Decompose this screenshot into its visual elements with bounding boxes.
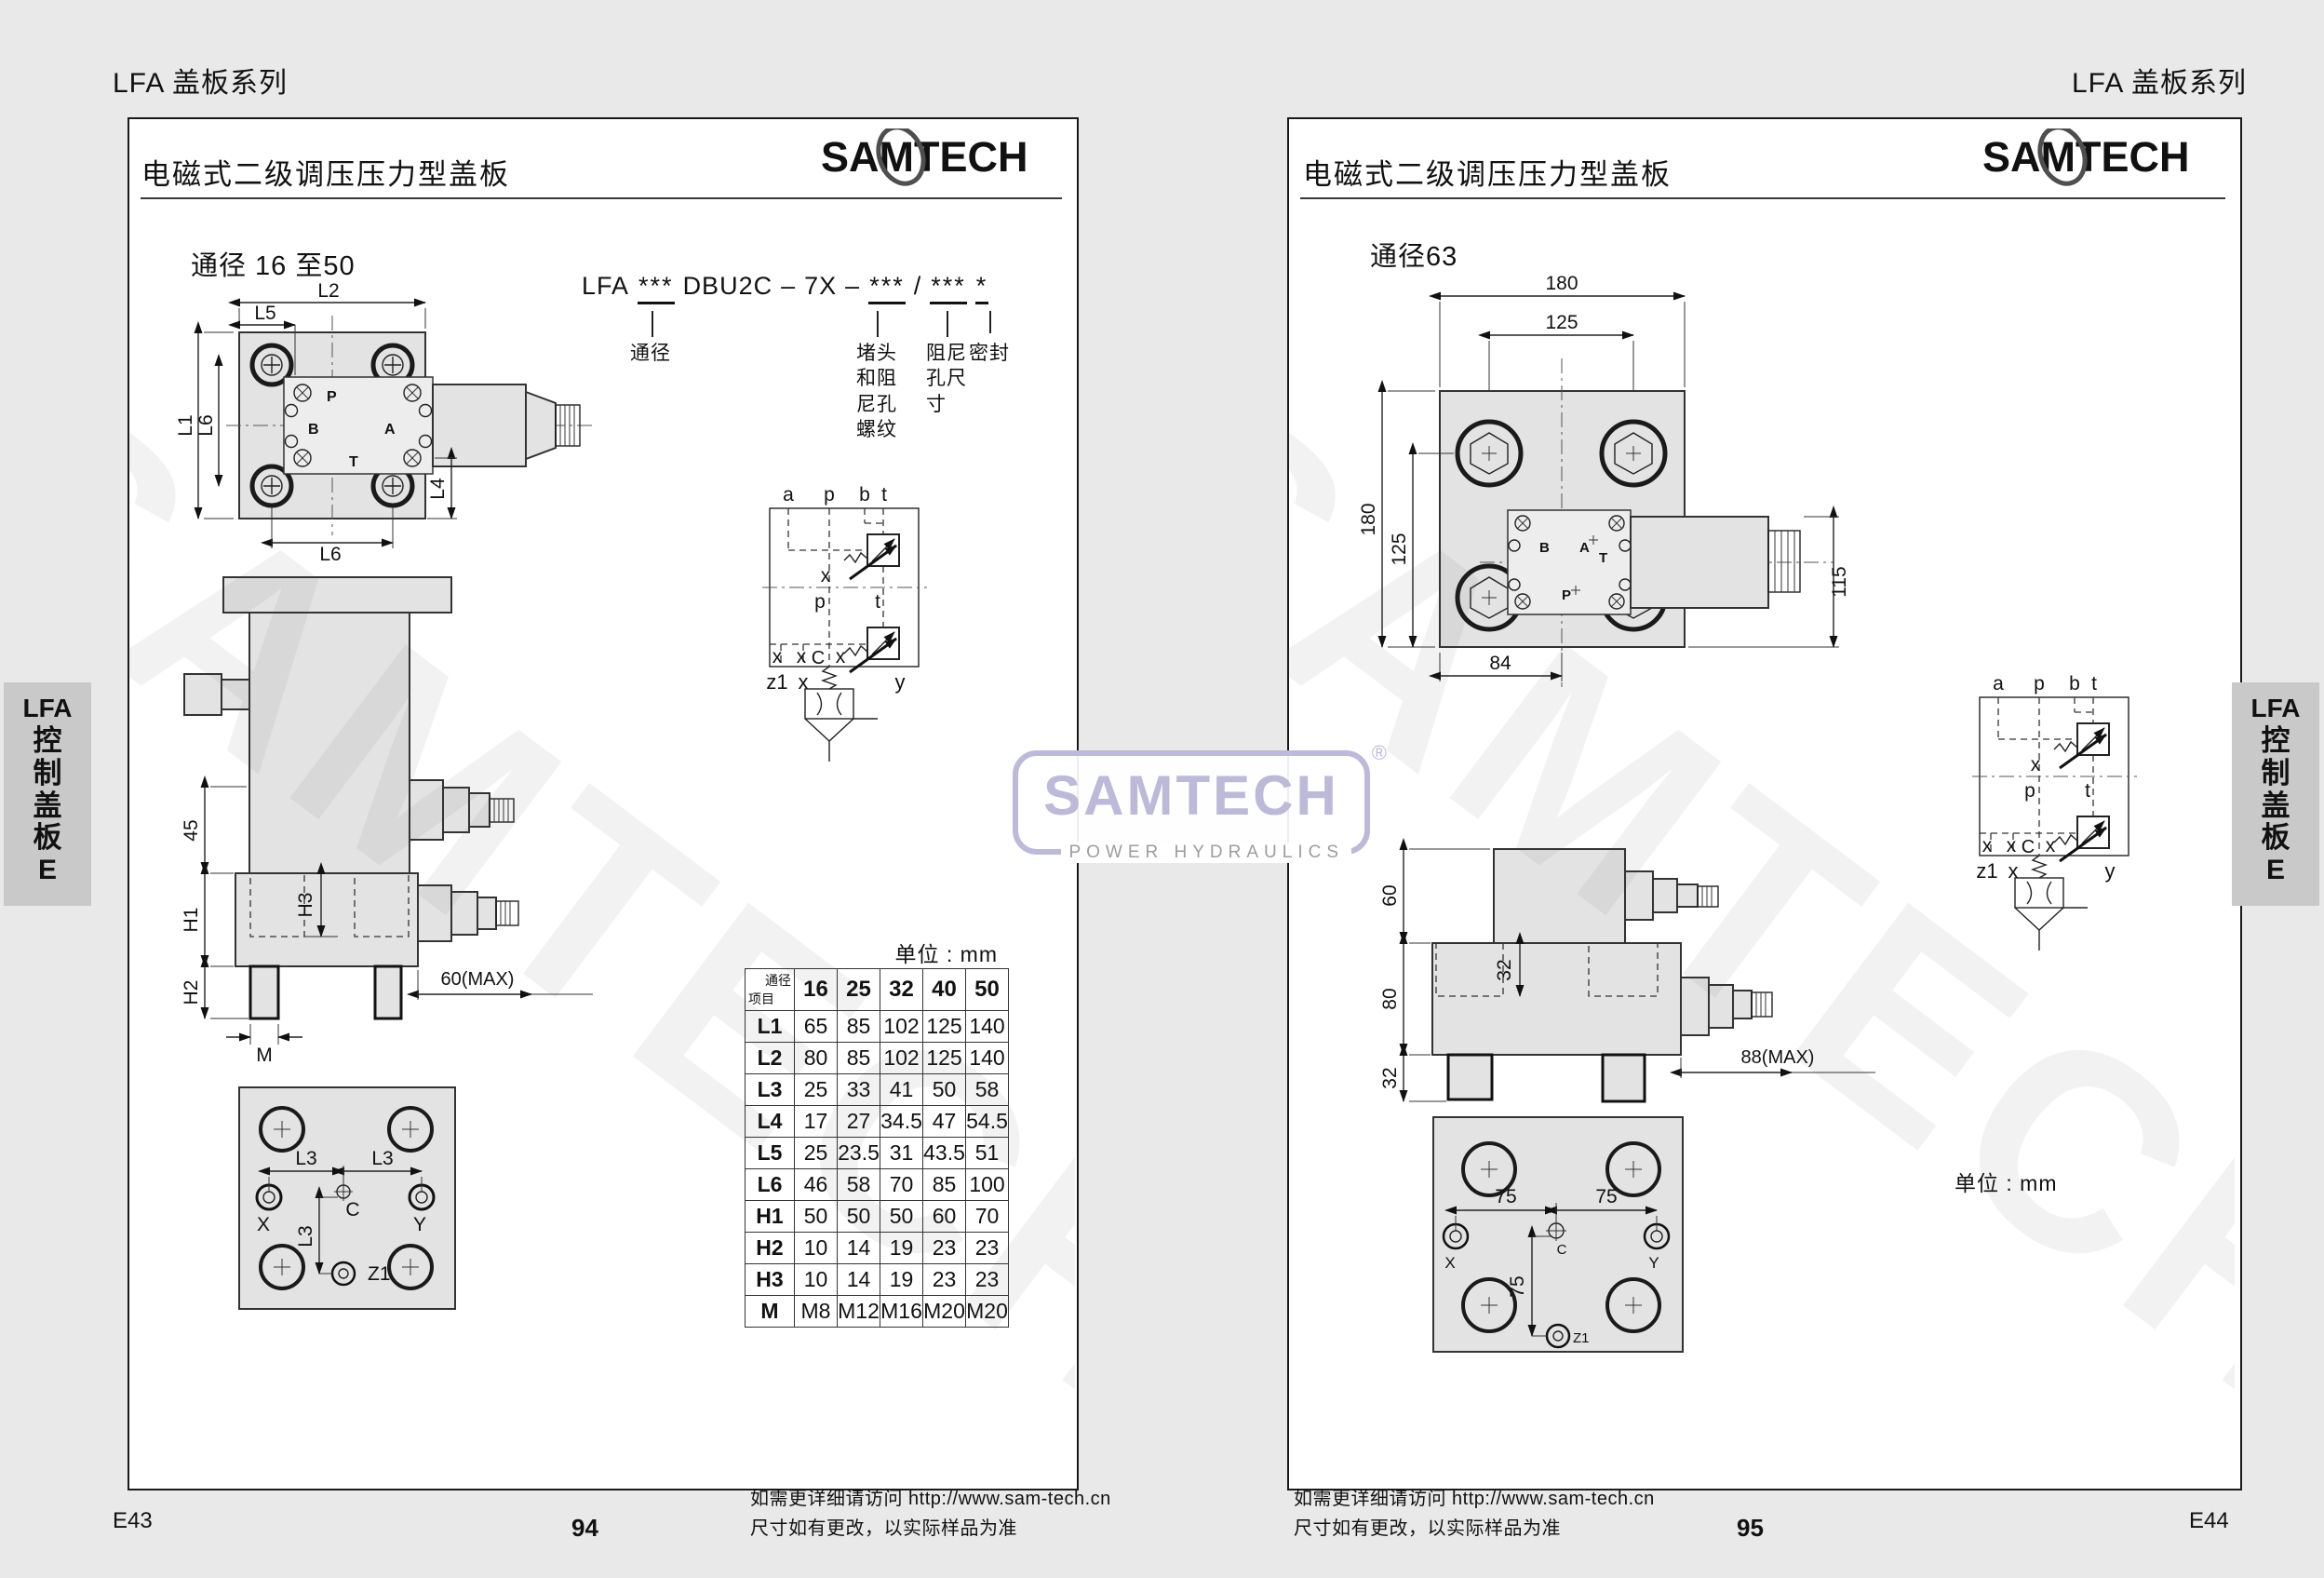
center-brand-name: SAMTECH: [1018, 756, 1364, 836]
sidebar-tab-right: LFA 控制盖板 E: [2232, 682, 2319, 906]
port-label-y: Y: [413, 1214, 426, 1235]
dim-label-32i: 32: [1494, 959, 1515, 980]
page-title-right: 电磁式二级调压压力型盖板: [1303, 151, 1672, 193]
lower-body: [1432, 943, 1681, 1055]
stud: [375, 966, 401, 1018]
lower-cartridge: [418, 885, 518, 941]
header-divider-right: [1300, 197, 2225, 199]
model-code: LFA***DBU2C–7X–***/**** 通径 堵头和阻尼孔螺纹 阻尼孔尺…: [582, 272, 1028, 458]
sch-label-p: p: [824, 486, 835, 506]
dim-label-h2: H2: [181, 980, 202, 1005]
table-row: L32533415058: [746, 1074, 1009, 1106]
sch-label-x4: x: [836, 646, 846, 668]
dim-label-l3a: L3: [295, 1148, 316, 1169]
tab-latin: LFA: [2232, 694, 2319, 723]
page-number-right: 95: [1737, 1514, 1764, 1543]
dim-label-80: 80: [1379, 988, 1401, 1009]
unit-label-left: 单位 : mm: [745, 937, 998, 968]
port-label-t: T: [1599, 550, 1607, 566]
page-code-right: E44: [2189, 1508, 2229, 1534]
port-label-c: C: [345, 1199, 359, 1221]
check-valve-icon: [2015, 856, 2088, 951]
center-brand-tagline: POWER HYDRAULICS: [1061, 843, 1351, 863]
table-header-row: 通径项目 1625324050: [746, 969, 1009, 1011]
series-header-left: LFA 盖板系列: [113, 60, 288, 101]
dim-label-32l: 32: [1379, 1067, 1401, 1088]
sch-label-x3: x: [797, 646, 807, 668]
sch-label-a: a: [1993, 675, 2004, 695]
top-view-drawing-right: 180 125 B A T P 180 125 115 84: [1350, 270, 2043, 703]
sch-label-t-mid: t: [2085, 780, 2090, 802]
dim-label-60: 60: [1379, 884, 1401, 906]
top-view-drawing-left: P B A T L2 L5 L1 L6 L4 L6: [172, 275, 600, 563]
code-callout-line: [989, 311, 991, 333]
hydraulic-schematic-left: a p b t x p t x x C x z1 x y: [759, 486, 931, 770]
dim-label-l6-bottom: L6: [319, 544, 341, 563]
code-callout-line: [877, 311, 879, 337]
solenoid-body: [1631, 517, 1768, 608]
relief-valve-icon: [2054, 723, 2109, 768]
sch-label-a: a: [783, 486, 794, 506]
sch-label-x2: x: [1982, 835, 1993, 856]
dim-label-l6-left: L6: [195, 414, 217, 436]
port-label-z1: Z1: [368, 1263, 391, 1285]
sch-label-x2: x: [772, 646, 783, 668]
dim-label-125t: 125: [1545, 312, 1578, 333]
code-seg: –: [781, 272, 796, 300]
table-row: L4172734.54754.5: [746, 1106, 1009, 1138]
tab-chars: 控制盖板: [2260, 725, 2291, 855]
sch-label-t: t: [2091, 675, 2097, 695]
top-cap: [223, 577, 451, 613]
dim-label-45: 45: [181, 819, 202, 841]
sch-label-p-mid: p: [814, 591, 826, 613]
table-row: MM8M12M16M20M20: [746, 1296, 1009, 1328]
code-label-orifice: 阻尼孔尺寸: [926, 341, 971, 417]
dim-label-180l: 180: [1358, 503, 1379, 535]
table-row: L16585102125140: [746, 1011, 1009, 1043]
table-corner: 通径项目: [746, 969, 795, 1011]
upper-body: [249, 613, 410, 873]
sch-label-p-mid: p: [2024, 780, 2035, 802]
unit-label-right: 单位 : mm: [1955, 1166, 2058, 1197]
dim-label-l5: L5: [254, 303, 275, 324]
model-code-line: LFA***DBU2C–7X–***/****: [582, 272, 1028, 301]
sch-label-x: x: [2031, 754, 2041, 776]
port-label-p: P: [1562, 587, 1571, 603]
bolt-icon: [1458, 422, 1521, 485]
sch-label-y: y: [2105, 859, 2116, 883]
footer-note-url: 如需更详细请访问 http://www.sam-tech.cn: [750, 1484, 1111, 1514]
footer-note-left: 如需更详细请访问 http://www.sam-tech.cn 尺寸如有更改，以…: [750, 1484, 1111, 1544]
code-label-plug: 堵头和阻尼孔螺纹: [856, 341, 901, 442]
relief-valve-icon: [844, 534, 899, 579]
dim-label-m: M: [256, 1045, 273, 1066]
tab-latin: LFA: [4, 694, 91, 723]
hole-icon: [261, 1108, 303, 1151]
dim-label-75b: 75: [1595, 1186, 1617, 1207]
port-label-x: X: [257, 1214, 270, 1235]
code-callout-line: [652, 311, 653, 337]
dim-label-l2: L2: [317, 280, 339, 302]
relief-valve-icon: [2054, 816, 2109, 861]
page-code-left: E43: [113, 1508, 153, 1534]
check-valve-icon: [805, 667, 878, 762]
dim-label-l3c: L3: [295, 1225, 316, 1247]
sch-label-z1: z1: [766, 670, 787, 694]
hole-icon: [389, 1108, 432, 1151]
code-label-bore: 通径: [630, 341, 671, 366]
hole-icon: [389, 1246, 432, 1288]
port-label-p: P: [327, 389, 337, 405]
dim-label-h1: H1: [181, 908, 202, 933]
sch-label-x: x: [821, 565, 831, 587]
lower-body: [235, 873, 418, 966]
relief-valve-icon: [844, 627, 899, 672]
dim-label-h3: H3: [295, 893, 316, 918]
dim-label-115: 115: [1829, 566, 1850, 597]
samtech-logo-right: SAMTECH: [1981, 128, 2204, 186]
stud: [250, 966, 278, 1018]
dim-label-75c: 75: [1507, 1275, 1528, 1297]
port-label-b: B: [308, 422, 319, 438]
footer-note-disclaimer: 尺寸如有更改，以实际样品为准: [1294, 1514, 1655, 1544]
sch-label-c: C: [2022, 837, 2035, 857]
sch-label-p: p: [2034, 675, 2045, 695]
port-label-t: T: [349, 454, 358, 470]
upper-cartridge: [1625, 871, 1718, 920]
bottom-view-drawing-right: X C Y Z1 75 75 75: [1424, 1110, 1722, 1394]
hydraulic-schematic-right: a p b t x p t x x C x z1 x y: [1968, 675, 2141, 959]
left-fitting: [184, 674, 249, 715]
stud: [1448, 1055, 1492, 1099]
code-seg: *: [975, 272, 989, 304]
port-label-a: A: [1579, 540, 1590, 556]
footer-note-url: 如需更详细请访问 http://www.sam-tech.cn: [1294, 1484, 1655, 1514]
lower-cartridge: [1681, 978, 1772, 1035]
bolt-icon: [1602, 422, 1665, 485]
registered-mark-icon: ®: [1372, 741, 1387, 765]
code-seg: ***: [868, 272, 906, 304]
dim-label-l3b: L3: [371, 1148, 393, 1169]
catalog-spread: { "brand": {"name": "SAMTECH", "tagline"…: [0, 0, 2324, 1578]
dim-label-75a: 75: [1495, 1186, 1516, 1207]
code-seg: 7X: [804, 272, 837, 300]
sch-label-y: y: [895, 670, 906, 694]
dimension-table: 通径项目 1625324050 L16585102125140 L2808510…: [745, 968, 1009, 1328]
code-label-seal: 密封: [969, 341, 1010, 366]
dim-label-60max: 60(MAX): [441, 969, 515, 990]
code-seg: ***: [930, 272, 967, 304]
sch-label-b: b: [859, 486, 870, 506]
connector-stripes: [1768, 531, 1800, 592]
page-number-left: 94: [571, 1514, 598, 1543]
samtech-logo-left: SAMTECH: [819, 128, 1042, 186]
sch-label-z1: z1: [1976, 859, 1997, 883]
sch-label-x4: x: [2046, 835, 2056, 856]
page-title-left: 电磁式二级调压压力型盖板: [141, 151, 510, 193]
table-row: L646587085100: [746, 1169, 1009, 1201]
sch-label-t-mid: t: [875, 591, 880, 613]
footer-note-disclaimer: 尺寸如有更改，以实际样品为准: [750, 1514, 1111, 1544]
side-view-drawing-left: 45 H1 H2 H3 M 60(MAX): [154, 566, 656, 1073]
table-row: H31014192323: [746, 1264, 1009, 1296]
sch-label-x-bottom: x: [2008, 859, 2019, 883]
port-label-c: C: [1557, 1242, 1567, 1258]
code-callout-line: [947, 311, 948, 337]
code-seg: –: [845, 272, 860, 300]
bottom-view-drawing-left: X C Y Z1 L3 L3 L3: [228, 1078, 517, 1357]
hole-icon: [261, 1246, 303, 1288]
dim-label-180t: 180: [1545, 273, 1578, 294]
port-label-a: A: [384, 422, 396, 438]
sidebar-tab-left: LFA 控制盖板 E: [4, 682, 91, 906]
sch-label-t: t: [881, 486, 887, 506]
dim-label-l1: L1: [175, 414, 196, 436]
dim-label-125l: 125: [1389, 533, 1410, 565]
port-label-z1: Z1: [1573, 1330, 1590, 1346]
table-row: L52523.53143.551: [746, 1138, 1009, 1169]
tab-suffix: E: [2232, 855, 2319, 885]
dim-label-84: 84: [1489, 653, 1511, 674]
footer-note-right: 如需更详细请访问 http://www.sam-tech.cn 尺寸如有更改，以…: [1294, 1484, 1655, 1544]
port-label-b: B: [1539, 540, 1550, 556]
size-heading-right: 通径63: [1370, 235, 1458, 274]
side-view-drawing-right: 32 60 80 32 88(MAX): [1354, 838, 2015, 1150]
upper-body: [1494, 849, 1625, 943]
center-brand-logo: SAMTECH ® POWER HYDRAULICS: [1013, 750, 1370, 855]
sch-label-c: C: [812, 648, 825, 668]
code-seg: DBU2C: [683, 272, 773, 300]
table-row: H21014192323: [746, 1233, 1009, 1264]
tab-chars: 控制盖板: [32, 725, 63, 855]
sch-label-x3: x: [2007, 835, 2017, 856]
table-row: L28085102125140: [746, 1043, 1009, 1074]
code-seg: /: [914, 272, 922, 300]
stud: [1603, 1055, 1645, 1101]
solenoid-cone: [526, 392, 556, 459]
tab-suffix: E: [4, 855, 91, 885]
hole-icon: [1607, 1279, 1659, 1331]
series-header-right: LFA 盖板系列: [2072, 60, 2247, 101]
dim-label-88max: 88(MAX): [1741, 1047, 1815, 1068]
code-seg: ***: [638, 272, 675, 304]
dim-label-l4: L4: [427, 478, 449, 500]
sch-label-b: b: [2069, 675, 2080, 695]
port-label-x: X: [1444, 1254, 1455, 1272]
port-label-y: Y: [1648, 1254, 1659, 1272]
sch-label-x-bottom: x: [799, 670, 809, 694]
header-divider-left: [141, 197, 1062, 199]
solenoid-body: [433, 384, 526, 466]
table-row: H15050506070: [746, 1201, 1009, 1233]
upper-cartridge: [410, 780, 514, 840]
